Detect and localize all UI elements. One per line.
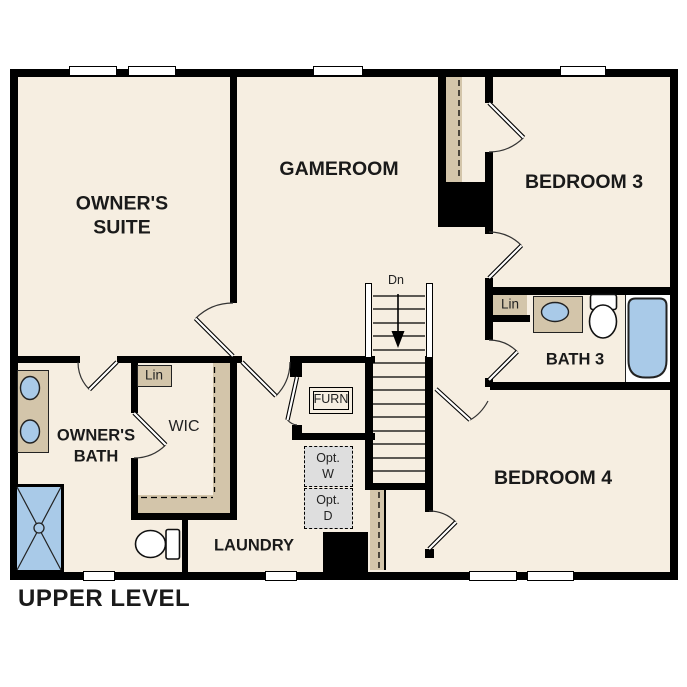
window [83,571,115,581]
window [560,66,606,76]
room-label-bedroom4: BEDROOM 4 [494,466,612,490]
label-furnace: FURN [314,392,349,408]
room-label-gameroom: GAMEROOM [279,157,398,181]
window [313,66,363,76]
room-label-bath3: BATH 3 [546,350,604,371]
label-lin-wic: Lin [145,368,163,385]
stair-rail-left [365,283,372,358]
wall-v2-b [485,152,493,182]
wall-bedroom4-hinge [425,549,434,558]
label-stairs-down: Dn [388,273,404,289]
wic-shelf-right [213,363,230,513]
wall-furn-top [295,356,375,363]
floor-plan: OWNER'S SUITE GAMEROOM BEDROOM 3 OWNER'S… [0,0,687,687]
wall-lin3-bottom [493,315,530,322]
wall-wic-bottom [131,513,237,520]
bedroom3-closet-shelf [446,77,462,182]
wall-v2-a [485,77,493,103]
wall-bath3-top [490,287,670,295]
page-title: UPPER LEVEL [18,585,190,613]
stair-rail-right [426,283,433,358]
room-label-bedroom3: BEDROOM 3 [525,170,643,194]
tub-alcove [625,295,670,382]
understair-wall [370,490,386,570]
block-laundry-chase [323,532,368,572]
wall-bedroom4-upper [425,490,433,512]
wall-wic-left-lower [131,458,138,520]
wall-toilet-partition [182,520,188,572]
wall-stair-right [425,356,433,490]
wall-suite-bottom-right [117,356,242,363]
window [265,571,297,581]
label-opt-dryer: Opt. D [316,492,340,525]
window [527,571,574,581]
window [69,66,117,76]
wall-v2-c [485,227,493,234]
window [469,571,517,581]
wall-furn-bottom [295,433,375,440]
wall-bath3-bottom [490,382,678,390]
wall-stair-left [365,356,373,490]
room-label-laundry: LAUNDRY [214,536,294,557]
room-label-wic: WIC [168,417,199,437]
wall-wic-right [230,363,237,520]
wall-stair-bottom [365,483,433,490]
owners-bath-vanity [17,370,49,453]
wic-shelf-bottom [138,495,213,513]
window [128,66,176,76]
label-lin-bath3: Lin [501,297,519,314]
bath3-vanity [533,296,583,333]
room-label-owners-suite: OWNER'S SUITE [76,192,168,241]
label-opt-washer: Opt. W [316,450,340,483]
wall-left [10,69,18,580]
wall-suite-right [230,77,237,303]
room-label-owners-bath: OWNER'S BATH [57,425,135,466]
wall-right [670,69,678,580]
wall-suite-bottom-left [10,356,80,363]
chase-block [438,182,493,227]
wall-closet3-left [438,77,446,182]
